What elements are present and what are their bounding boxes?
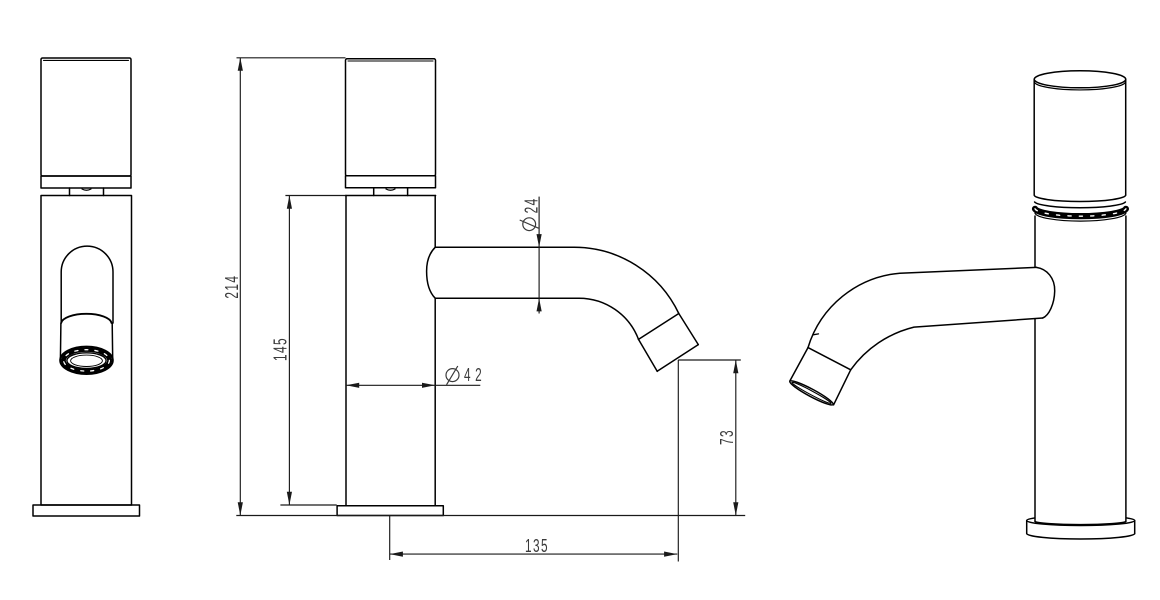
- svg-text:214: 214: [222, 275, 242, 299]
- svg-text:24: 24: [522, 197, 542, 213]
- svg-text:73: 73: [718, 429, 738, 445]
- svg-text:145: 145: [271, 337, 291, 361]
- svg-text:135: 135: [525, 537, 549, 557]
- svg-text:42: 42: [464, 365, 486, 385]
